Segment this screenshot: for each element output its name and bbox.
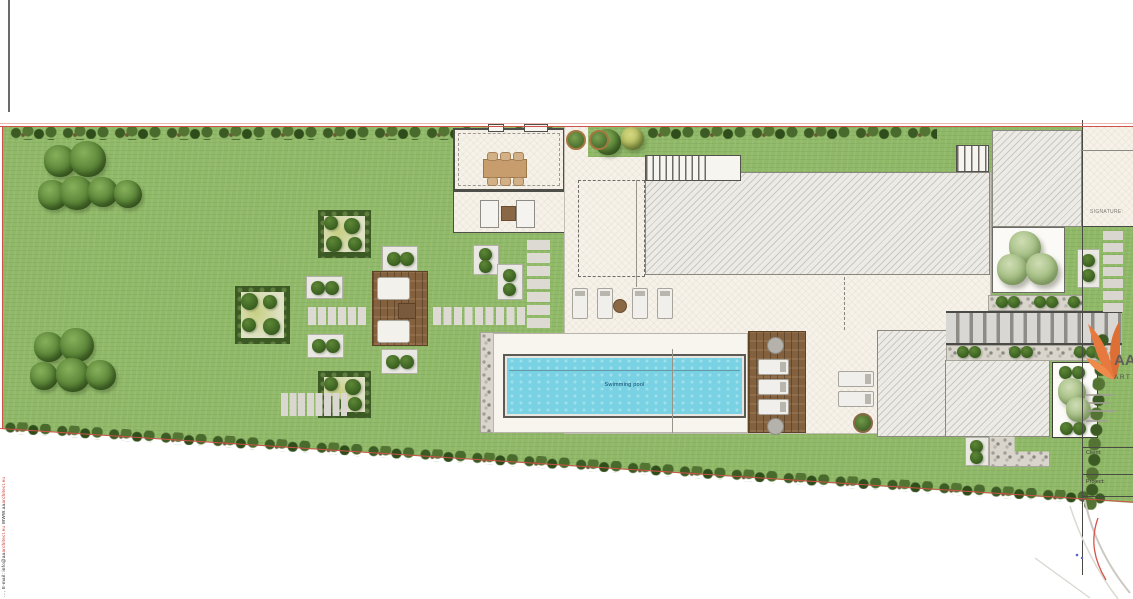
shrub xyxy=(312,339,326,353)
stairs-main xyxy=(645,155,741,181)
planter-shrub xyxy=(326,236,342,252)
planter-shrub xyxy=(348,397,362,411)
tree xyxy=(1026,253,1058,285)
deck-pot xyxy=(767,418,784,435)
dining-chair xyxy=(487,152,498,161)
tree xyxy=(30,362,58,390)
shrub xyxy=(969,346,981,358)
shrub-pad xyxy=(497,264,523,300)
architect-logo-icon xyxy=(1084,320,1120,382)
shrub xyxy=(1009,346,1021,358)
title-block-line xyxy=(1082,226,1133,227)
shrub-pad xyxy=(306,276,343,299)
title-block-line xyxy=(1082,474,1133,475)
courtyard xyxy=(992,227,1065,293)
pool-water: Swimming pool xyxy=(507,358,742,414)
edge-note-email: E-mail: info@aa xyxy=(1,553,6,590)
lounge-deck xyxy=(372,271,428,346)
planter-shrub xyxy=(241,293,258,310)
potted-tree xyxy=(589,130,609,150)
stepping-stone-path xyxy=(281,393,347,416)
shrub-pad xyxy=(473,245,499,275)
project-label: Project: xyxy=(1086,479,1105,485)
edge-note-domain: architect.eu xyxy=(1,477,6,504)
shrub xyxy=(1082,254,1095,267)
dimension-line xyxy=(672,349,673,433)
shrub xyxy=(1068,296,1080,308)
armchair xyxy=(480,200,499,228)
edge-note: …, E-mail: info@aaarchitect.eu WWW.aaarc… xyxy=(1,425,10,597)
shrub xyxy=(957,346,969,358)
coffee-table xyxy=(398,303,416,319)
pool-frame: Swimming pool xyxy=(503,354,746,418)
dining-chair xyxy=(487,177,498,186)
client-label: Client: xyxy=(1086,450,1102,456)
shrub-pad xyxy=(307,334,344,358)
planter-shrub xyxy=(345,379,361,395)
pavilion-patio xyxy=(453,191,565,233)
shrub xyxy=(1073,422,1086,435)
pool-label: Swimming pool xyxy=(507,382,742,388)
sun-lounger xyxy=(597,288,613,319)
tree xyxy=(621,127,644,150)
planter-shrub xyxy=(263,295,277,309)
planter-box xyxy=(235,286,290,344)
sun-lounger xyxy=(838,391,874,407)
dining-chair xyxy=(513,177,524,186)
signature-label: SIGNATURE: xyxy=(1090,209,1123,215)
stepping-stone-path xyxy=(308,307,366,325)
sun-lounger xyxy=(758,359,789,375)
road-sketch xyxy=(1030,498,1133,599)
house-roof xyxy=(645,172,990,275)
edge-note-lead: …, xyxy=(1,589,6,597)
brand-initials: AA xyxy=(1114,352,1133,369)
title-block-line xyxy=(1082,150,1133,151)
tree xyxy=(60,328,94,362)
dining-chair xyxy=(500,152,511,161)
sheet-edge-line xyxy=(8,0,10,112)
title-block-line xyxy=(1082,447,1133,448)
tree xyxy=(70,141,106,177)
shrub xyxy=(325,281,339,295)
shrub xyxy=(1046,296,1058,308)
sun-lounger xyxy=(838,371,874,387)
planter-shrub xyxy=(344,218,360,234)
shrub xyxy=(1008,296,1020,308)
garden-sofa xyxy=(377,320,410,343)
stairs-treads xyxy=(646,156,706,180)
round-table xyxy=(613,299,627,313)
sun-lounger xyxy=(758,379,789,395)
tree xyxy=(114,180,142,208)
shrub xyxy=(386,355,400,369)
boundary-line-top-outer xyxy=(0,123,1133,124)
stepping-stone-path xyxy=(433,307,527,325)
dining-chair xyxy=(500,177,511,186)
shrub xyxy=(326,339,340,353)
shrub xyxy=(1034,296,1046,308)
shrub xyxy=(479,260,492,273)
title-block-text-line xyxy=(1086,394,1114,396)
planter-shrub xyxy=(242,318,256,332)
pool-lane-line xyxy=(509,370,740,371)
title-block-line xyxy=(1082,496,1133,497)
garden-sofa xyxy=(377,277,410,300)
shrub xyxy=(400,252,414,266)
shrub-pad xyxy=(381,349,418,374)
stepping-stone-path xyxy=(527,237,550,328)
shrub xyxy=(1082,269,1095,282)
shrub xyxy=(503,283,516,296)
deck-pot xyxy=(767,337,784,354)
stairs-side xyxy=(956,145,989,172)
side-table xyxy=(501,206,516,221)
shrub-pad xyxy=(382,246,418,271)
shrub xyxy=(996,296,1008,308)
dining-table xyxy=(483,159,527,178)
sun-lounger xyxy=(758,399,789,415)
shrub xyxy=(311,281,325,295)
shrub xyxy=(400,355,414,369)
edge-note-www: WWW.aa xyxy=(1,504,6,526)
boundary-line-top xyxy=(0,126,1133,127)
shrub xyxy=(503,269,516,282)
potted-tree xyxy=(566,130,586,150)
shrub xyxy=(1021,346,1033,358)
potted-plant xyxy=(853,413,873,433)
site-plan-sheet: Swimming pool xyxy=(0,0,1133,599)
title-block-text-line xyxy=(1086,410,1116,412)
tree xyxy=(997,254,1028,285)
planter-shrub xyxy=(324,216,338,230)
tree xyxy=(86,360,116,390)
pool-deck xyxy=(748,331,806,433)
sun-lounger xyxy=(657,288,673,319)
dining-chair xyxy=(513,152,524,161)
brand-word: ART xyxy=(1114,374,1131,381)
shrub xyxy=(387,252,401,266)
boundary-line-left xyxy=(2,126,3,429)
planter-box xyxy=(318,210,371,258)
shrub-pad xyxy=(1077,249,1100,288)
canopy-outline xyxy=(578,180,645,277)
title-block-text-line xyxy=(1086,402,1110,404)
hedge-top-right xyxy=(645,127,937,139)
armchair xyxy=(516,200,535,228)
sun-lounger xyxy=(572,288,588,319)
title-block-text-line xyxy=(1086,420,1108,422)
dashed-edge-line xyxy=(844,277,845,330)
edge-note-domain: architect.eu xyxy=(1,526,6,553)
shrub xyxy=(970,451,983,464)
tree xyxy=(56,358,90,392)
shrub-pad xyxy=(965,437,989,466)
paved-area xyxy=(877,330,947,437)
garage-roof xyxy=(992,130,1082,227)
sun-lounger xyxy=(632,288,648,319)
paved-area xyxy=(945,360,1050,437)
stepping-stone-path xyxy=(1103,228,1123,312)
shrub xyxy=(1060,422,1073,435)
planter-shrub xyxy=(324,377,338,391)
dimension-line xyxy=(636,180,637,287)
planter-shrub xyxy=(348,237,362,251)
planter-shrub xyxy=(263,318,280,335)
